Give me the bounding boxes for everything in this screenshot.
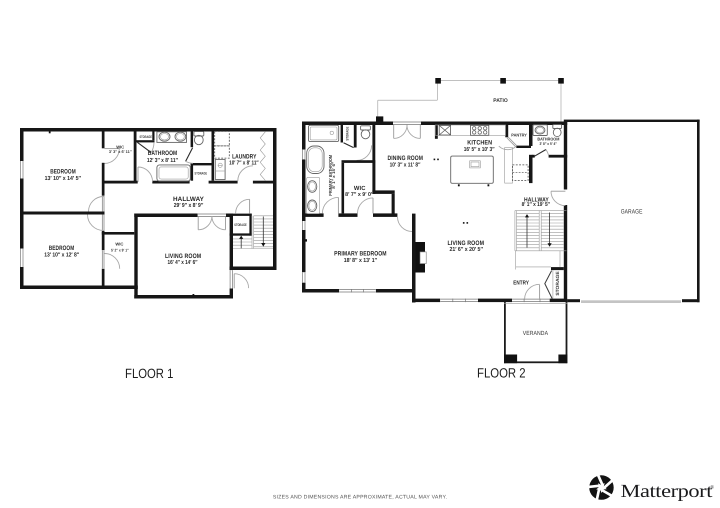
svg-text:LIVING ROOM: LIVING ROOM xyxy=(165,253,201,260)
svg-text:LAUNDRY: LAUNDRY xyxy=(232,154,257,161)
svg-text:BATHROOM: BATHROOM xyxy=(537,137,560,142)
svg-text:Matterport: Matterport xyxy=(621,481,714,502)
svg-text:3′ 3″ x 6′ 11″: 3′ 3″ x 6′ 11″ xyxy=(109,149,132,154)
svg-text:DINING ROOM: DINING ROOM xyxy=(388,155,424,162)
svg-text:8′ 1″ x 15′ 6″: 8′ 1″ x 15′ 6″ xyxy=(331,162,336,189)
svg-text:STORAGE: STORAGE xyxy=(195,171,208,175)
svg-text:SIZES AND DIMENSIONS ARE APPRO: SIZES AND DIMENSIONS ARE APPROXIMATE, AC… xyxy=(273,495,447,501)
svg-text:16′ 4″ x 14′ 6″: 16′ 4″ x 14′ 6″ xyxy=(168,259,198,266)
svg-text:BEDROOM: BEDROOM xyxy=(50,168,76,175)
svg-text:BATHROOM: BATHROOM xyxy=(148,150,178,157)
svg-text:PANTRY: PANTRY xyxy=(511,132,527,137)
svg-text:GARAGE: GARAGE xyxy=(621,209,643,216)
svg-text:8′ 1″ x 19′ 5″: 8′ 1″ x 19′ 5″ xyxy=(522,202,551,208)
svg-text:WIC: WIC xyxy=(115,241,123,246)
svg-text:STORAGE: STORAGE xyxy=(555,271,560,295)
svg-text:STORAGE: STORAGE xyxy=(234,223,247,227)
svg-text:12′ 3″ x 8′ 11″: 12′ 3″ x 8′ 11″ xyxy=(147,157,178,164)
svg-text:KITCHEN: KITCHEN xyxy=(467,140,492,147)
svg-text:10′ 3″ x 11′ 8″: 10′ 3″ x 11′ 8″ xyxy=(390,162,421,169)
svg-text:STORAGE: STORAGE xyxy=(139,135,152,139)
svg-text:BEDROOM: BEDROOM xyxy=(49,245,75,252)
svg-text:STORAGE: STORAGE xyxy=(346,126,350,141)
svg-text:13′ 10″ x 12′ 8″: 13′ 10″ x 12′ 8″ xyxy=(44,252,79,259)
svg-text:®: ® xyxy=(710,484,714,490)
svg-text:WIC: WIC xyxy=(354,185,366,192)
svg-text:3′ 8″ x 5′ 4″: 3′ 8″ x 5′ 4″ xyxy=(540,142,557,146)
svg-text:8′ 7″ x 9′ 0″: 8′ 7″ x 9′ 0″ xyxy=(345,192,374,198)
svg-text:PRIMARY BEDROOM: PRIMARY BEDROOM xyxy=(334,251,387,258)
svg-text:13′ 10″ x 14′ 5″: 13′ 10″ x 14′ 5″ xyxy=(45,175,82,182)
svg-text:FLOOR 2: FLOOR 2 xyxy=(477,366,526,381)
svg-text:16′ 5″ x 10′ 3″: 16′ 5″ x 10′ 3″ xyxy=(464,146,495,153)
svg-text:18′ 8″ x 13′ 1″: 18′ 8″ x 13′ 1″ xyxy=(344,257,377,264)
svg-text:29′ 9″ x 8′ 9″: 29′ 9″ x 8′ 9″ xyxy=(174,202,204,209)
svg-text:FLOOR 1: FLOOR 1 xyxy=(125,366,173,381)
svg-text:PATIO: PATIO xyxy=(493,98,508,104)
svg-text:21′ 6″ x 20′ 5″: 21′ 6″ x 20′ 5″ xyxy=(449,246,483,253)
svg-text:VERANDA: VERANDA xyxy=(523,330,548,337)
svg-text:ENTRY: ENTRY xyxy=(513,280,529,286)
svg-text:5′ 2″ x 9′ 1″: 5′ 2″ x 9′ 1″ xyxy=(111,248,129,253)
svg-text:10′ 7″ x 8′ 11″: 10′ 7″ x 8′ 11″ xyxy=(229,160,259,167)
svg-text:HALLWAY: HALLWAY xyxy=(173,196,205,203)
